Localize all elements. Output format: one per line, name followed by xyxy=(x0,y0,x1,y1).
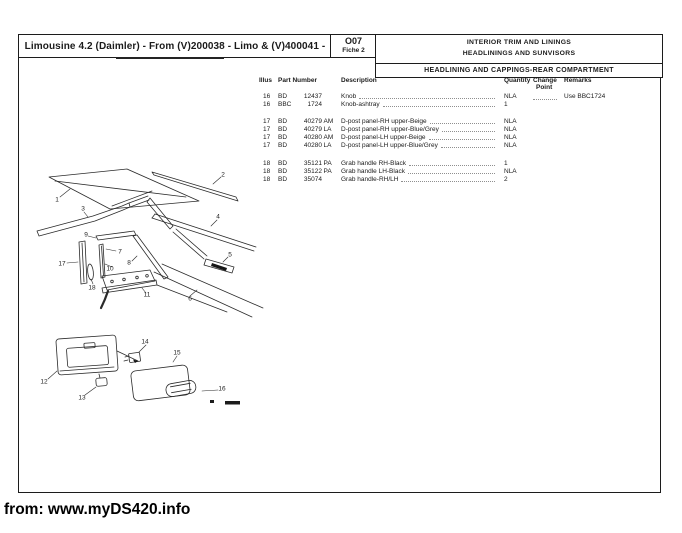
cell-remarks: Use BBC1724 xyxy=(564,94,605,101)
cell-description: Grab handle LH-Black xyxy=(341,169,497,176)
cell-part-suffix: AM xyxy=(324,135,334,142)
section-header: INTERIOR TRIM AND LININGS HEADLININGS AN… xyxy=(375,34,663,64)
column-header-part-number: Part Number xyxy=(278,78,317,85)
cell-illus: 18 xyxy=(263,169,270,176)
fiche-code: O07 xyxy=(345,37,362,47)
parts-table: Illus Part Number Description Quantity C… xyxy=(259,78,639,228)
cell-illus: 16 xyxy=(263,102,270,109)
cell-illus: 18 xyxy=(263,161,270,168)
fiche-reference: O07 Fiche 2 xyxy=(330,34,377,58)
cell-description: Grab handle RH-Black xyxy=(341,161,497,168)
cell-part-number: 35122 xyxy=(299,169,322,176)
cell-part-prefix: BD xyxy=(278,94,287,101)
cell-quantity: NLA xyxy=(504,94,517,101)
table-row: 18BD35074Grab handle-RH/LH2 xyxy=(259,177,639,185)
cell-part-suffix: LA xyxy=(324,127,332,134)
source-watermark: from: www.myDS420.info xyxy=(4,501,190,519)
cell-quantity: NLA xyxy=(504,135,517,142)
cell-illus: 18 xyxy=(263,177,270,184)
section-line-1: INTERIOR TRIM AND LININGS xyxy=(467,38,571,49)
cell-part-suffix: PA xyxy=(324,161,332,168)
cell-part-number: 40280 xyxy=(299,135,322,142)
scan-artifact-line xyxy=(116,57,224,60)
cell-part-number: 40279 xyxy=(299,127,322,134)
cell-quantity: 2 xyxy=(504,177,508,184)
page-title: Limousine 4.2 (Daimler) - From (V)200038… xyxy=(18,34,332,58)
cell-quantity: NLA xyxy=(504,169,517,176)
cell-illus: 17 xyxy=(263,127,270,134)
cell-illus: 17 xyxy=(263,119,270,126)
fiche-number: Fiche 2 xyxy=(342,47,364,54)
cell-description: D-post panel-LH upper-Beige xyxy=(341,135,497,142)
cell-part-suffix: PA xyxy=(324,169,332,176)
cell-change-point-leader xyxy=(533,94,557,100)
cell-part-prefix: BD xyxy=(278,143,287,150)
cell-description: D-post panel-LH upper-Blue/Grey xyxy=(341,143,497,150)
cell-quantity: NLA xyxy=(504,143,517,150)
cell-part-prefix: BBC xyxy=(278,102,291,109)
cell-part-suffix: AM xyxy=(324,119,334,126)
table-row: 17BD40280LAD-post panel-LH upper-Blue/Gr… xyxy=(259,143,639,151)
cell-part-prefix: BD xyxy=(278,161,287,168)
cell-part-prefix: BD xyxy=(278,177,287,184)
cell-quantity: 1 xyxy=(504,102,508,109)
cell-part-prefix: BD xyxy=(278,127,287,134)
table-row: 16BBC1724Knob-ashtray1 xyxy=(259,102,639,110)
cell-part-number: 12437 xyxy=(299,94,322,101)
cell-part-prefix: BD xyxy=(278,119,287,126)
cell-description: D-post panel-RH upper-Blue/Grey xyxy=(341,127,497,134)
cell-description: Knob-ashtray xyxy=(341,102,497,109)
cell-quantity: 1 xyxy=(504,161,508,168)
cell-description: D-post panel-RH upper-Beige xyxy=(341,119,497,126)
cell-description: Grab handle-RH/LH xyxy=(341,177,497,184)
subsection-header: HEADLINING AND CAPPINGS-REAR COMPARTMENT xyxy=(375,63,663,79)
column-header-quantity: Quantity xyxy=(504,78,530,85)
cell-part-number: 40280 xyxy=(299,143,322,150)
cell-part-number: 1724 xyxy=(299,102,322,109)
subsection-text: HEADLINING AND CAPPINGS-REAR COMPARTMENT xyxy=(424,67,614,74)
cell-illus: 17 xyxy=(263,143,270,150)
cell-quantity: NLA xyxy=(504,119,517,126)
page-title-text: Limousine 4.2 (Daimler) - From (V)200038… xyxy=(25,41,326,52)
cell-quantity: NLA xyxy=(504,127,517,134)
cell-part-prefix: BD xyxy=(278,135,287,142)
column-header-illus: Illus xyxy=(259,78,272,85)
cell-illus: 17 xyxy=(263,135,270,142)
cell-part-number: 35074 xyxy=(299,177,322,184)
cell-part-number: 40279 xyxy=(299,119,322,126)
cell-description: Knob xyxy=(341,94,497,101)
catalog-page: Limousine 4.2 (Daimler) - From (V)200038… xyxy=(18,34,661,493)
column-header-description: Description xyxy=(341,78,377,85)
column-header-remarks: Remarks xyxy=(564,78,591,85)
column-header-point: Point xyxy=(536,85,552,92)
section-line-2: HEADLININGS AND SUNVISORS xyxy=(463,49,576,60)
cell-part-suffix: LA xyxy=(324,143,332,150)
cell-part-prefix: BD xyxy=(278,169,287,176)
cell-part-number: 35121 xyxy=(299,161,322,168)
cell-illus: 16 xyxy=(263,94,270,101)
